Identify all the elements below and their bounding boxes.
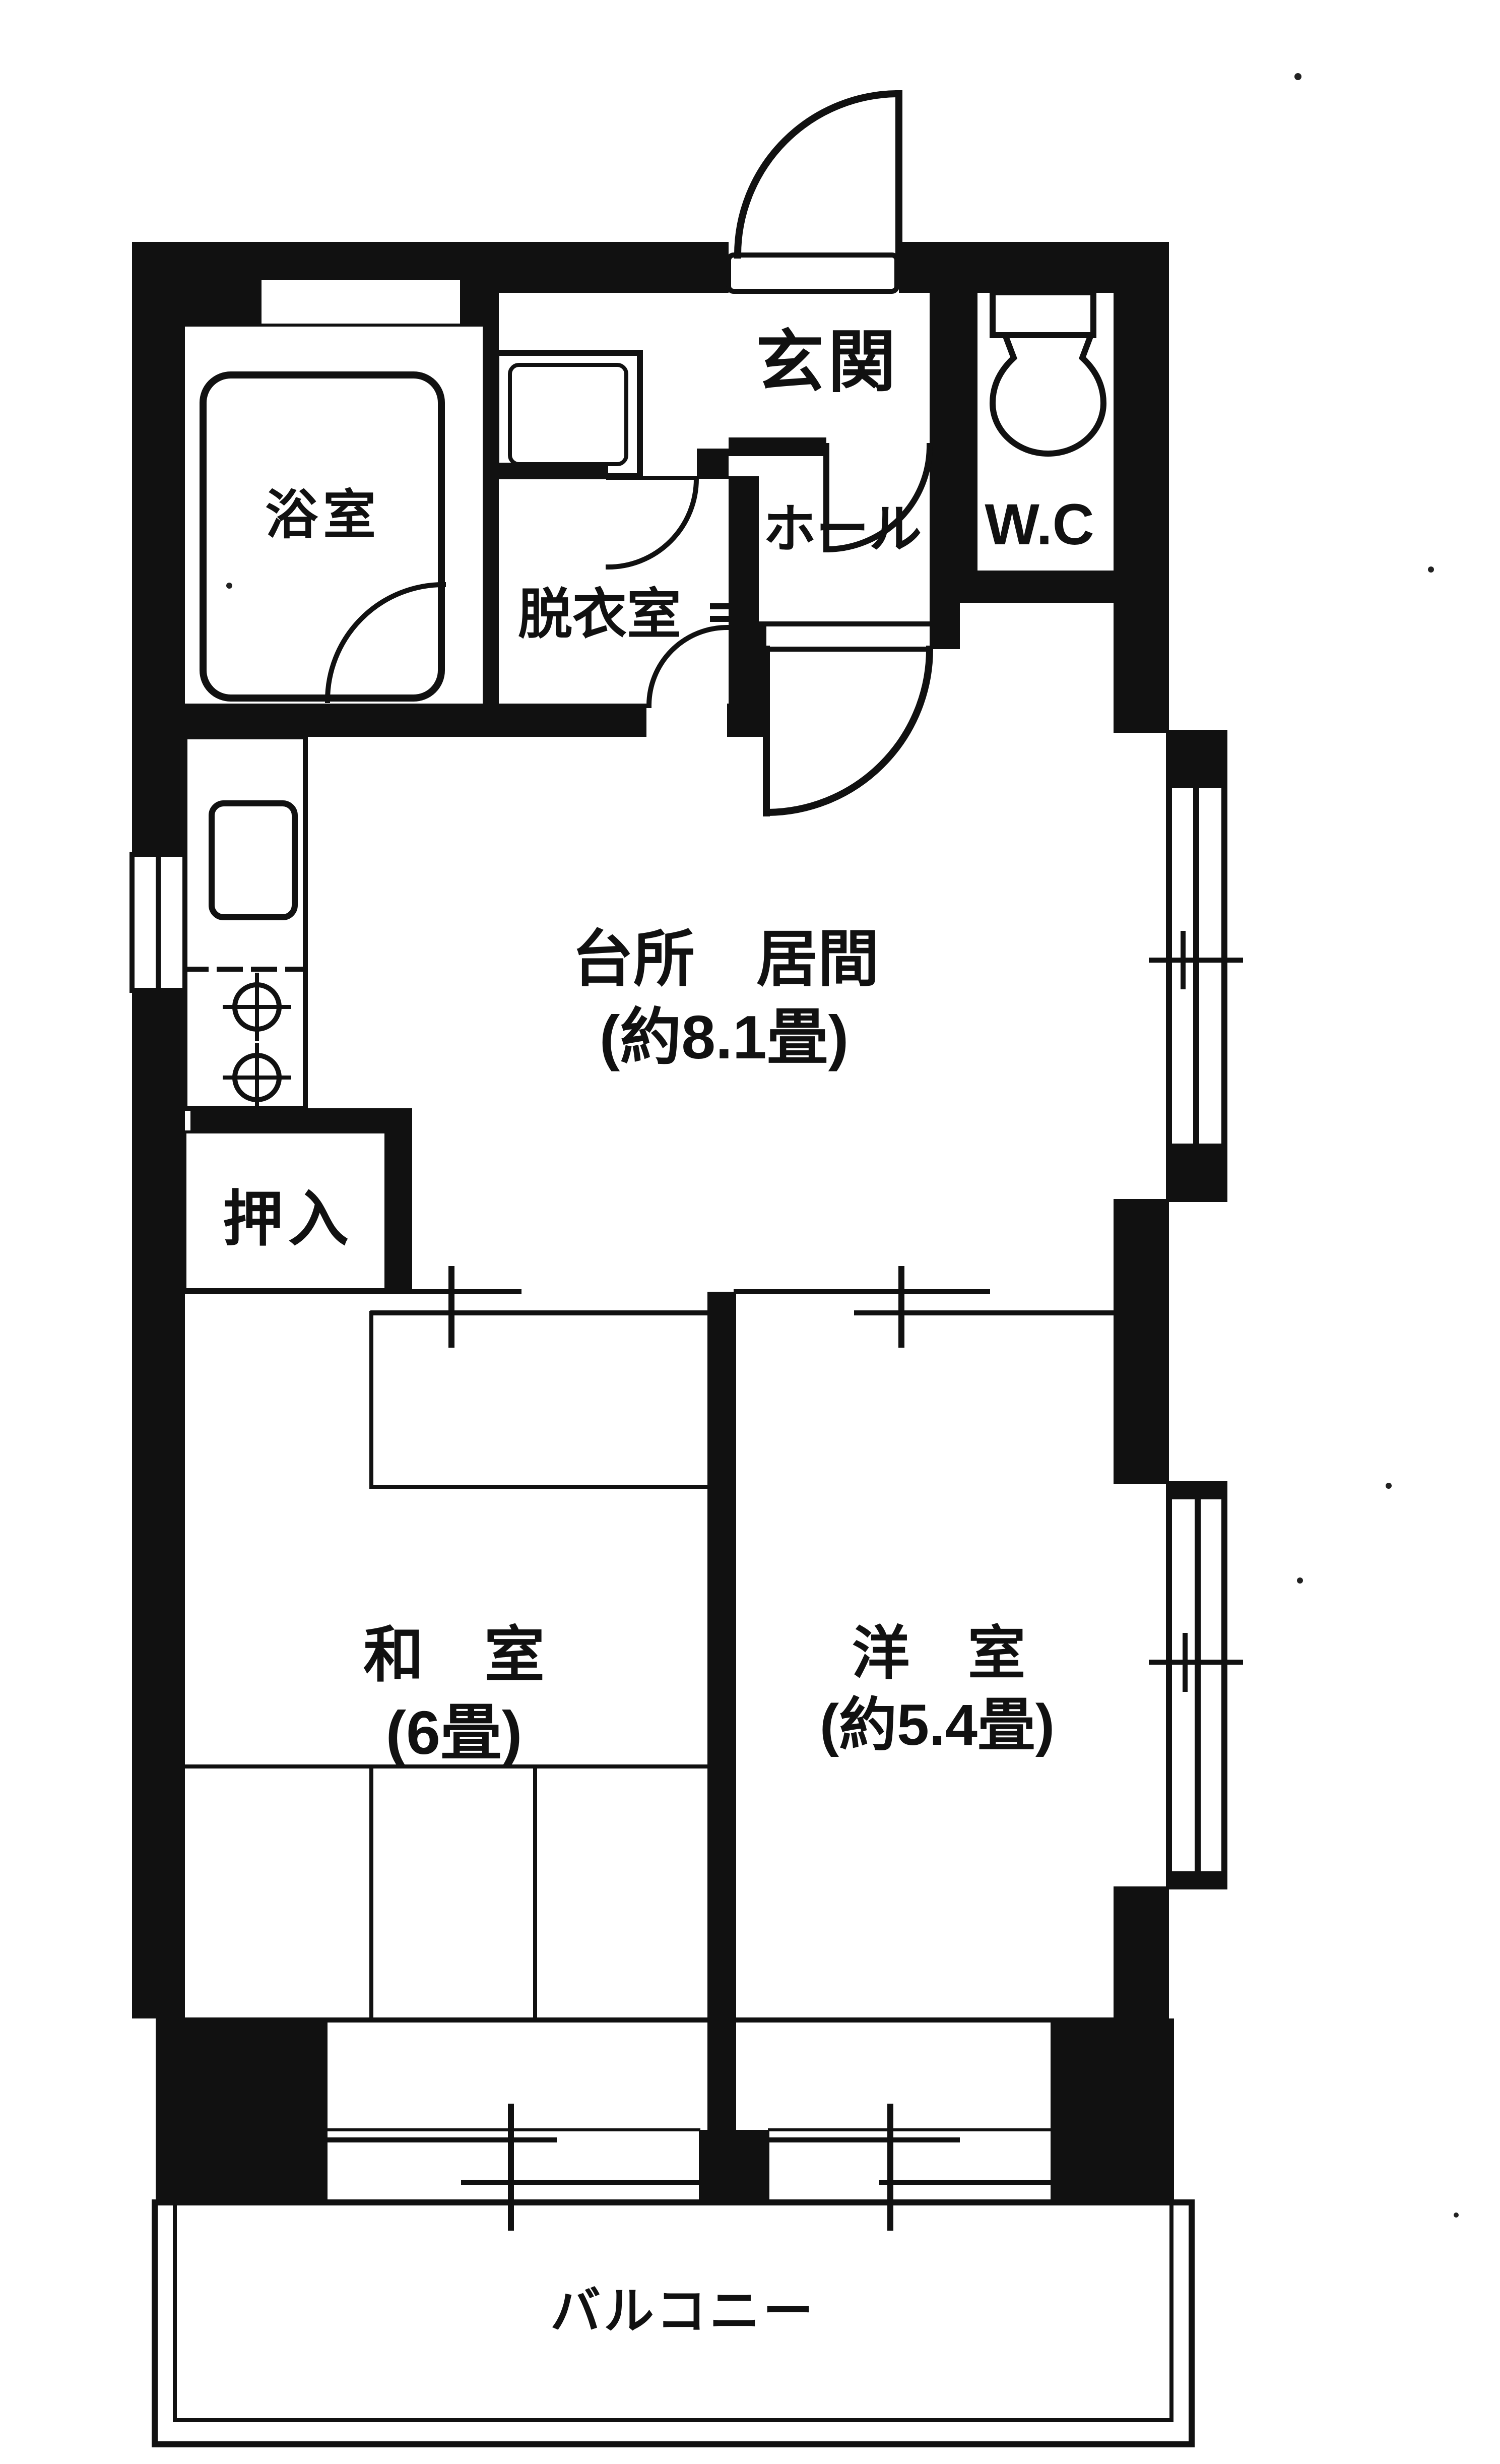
scan-artifact-dot: [226, 583, 232, 589]
hall-area: [759, 624, 930, 813]
wall-segment: [132, 293, 262, 325]
washing-machine-inner: [510, 365, 626, 464]
label-japanese-room: 和 室: [363, 1621, 545, 1689]
bath-wall-notch: [262, 280, 460, 326]
scan-artifact-dot: [1294, 73, 1301, 80]
label-closet: 押入: [223, 1185, 354, 1253]
wall-segment: [697, 449, 729, 479]
living-door-arc-icon: [766, 649, 930, 812]
washing-machine-pan-icon: [496, 353, 640, 476]
stove-burner-cross: [225, 975, 289, 1039]
label-dressing-room: 脱衣室: [518, 584, 681, 645]
toilet-bowl-icon: [993, 335, 1103, 454]
toilet-tank: [993, 292, 1093, 335]
label-western-room: 洋 室: [852, 1621, 1025, 1686]
label-entrance: 玄関: [756, 324, 900, 400]
wall-segment: [185, 704, 646, 737]
kitchen-area: [185, 737, 305, 1110]
bathroom-door-arc-icon: [328, 585, 443, 701]
label-bathroom: 浴室: [265, 486, 381, 545]
wall-segment: [707, 1292, 736, 2130]
scan-artifact-dot: [1454, 2213, 1459, 2218]
hall-threshold-lines: [759, 624, 930, 649]
windows: [132, 733, 1241, 1886]
wall-segment: [132, 990, 185, 2018]
wall-segment: [930, 571, 960, 649]
wall-segment: [1051, 2018, 1174, 2202]
label-toilet: W.C: [985, 492, 1094, 557]
label-hall: ホール: [763, 500, 922, 559]
wall-segment: [386, 1132, 412, 1290]
label-balcony: バルコニー: [550, 2283, 816, 2340]
wall-segment: [930, 293, 977, 571]
dressing-door-arc-icon: [608, 479, 696, 567]
label-western-room-size: (約5.4畳): [820, 1693, 1055, 1757]
wall-segment: [1114, 1199, 1169, 1484]
wall-segment: [460, 293, 499, 325]
label-kitchen-living: 台所 居間: [572, 925, 879, 993]
kitchen-counter: [185, 737, 305, 1108]
scan-artifact-dot: [1386, 1483, 1392, 1489]
window-cap: [1169, 733, 1224, 788]
scan-artifact-dot: [1428, 566, 1434, 573]
entrance-door-arc-icon: [738, 94, 899, 255]
floor-plan-drawing: 玄関 W.C ホール 浴室 脱衣室 台所 居間 (約8.1畳) 押入 和 室 (…: [0, 0, 1500, 2464]
label-kitchen-living-size: (約8.1畳): [600, 1003, 849, 1071]
sliding-door-western-room: [736, 1292, 1114, 1313]
sliding-door-japanese-room: [185, 1292, 707, 1313]
floor-plan-page: 玄関 W.C ホール 浴室 脱衣室 台所 居間 (約8.1畳) 押入 和 室 (…: [0, 0, 1500, 2464]
scan-artifact-dot: [1297, 1577, 1303, 1584]
label-japanese-room-size: (6畳): [385, 1698, 522, 1767]
toilet-area: [993, 292, 1103, 454]
wall-segment: [699, 2130, 769, 2202]
wall-segment: [729, 624, 766, 737]
entrance-step: [729, 255, 897, 291]
wall-segment: [156, 2018, 328, 2202]
wall-segment: [190, 1108, 412, 1132]
wall-segment: [729, 476, 759, 624]
kitchen-sink-icon: [212, 803, 295, 917]
balcony-sliding-door-western: [769, 2140, 1051, 2182]
stove-burner-cross: [225, 1045, 289, 1110]
wall-segment: [729, 437, 826, 456]
sliding-doors: [185, 1269, 1114, 1345]
wall-segment: [960, 571, 1114, 603]
wall-segment: [1114, 1886, 1169, 2018]
dressing-room-area: [496, 353, 737, 706]
wall-segment: [1114, 293, 1169, 733]
wall-segment: [132, 293, 185, 854]
window-cap: [1169, 1144, 1224, 1199]
